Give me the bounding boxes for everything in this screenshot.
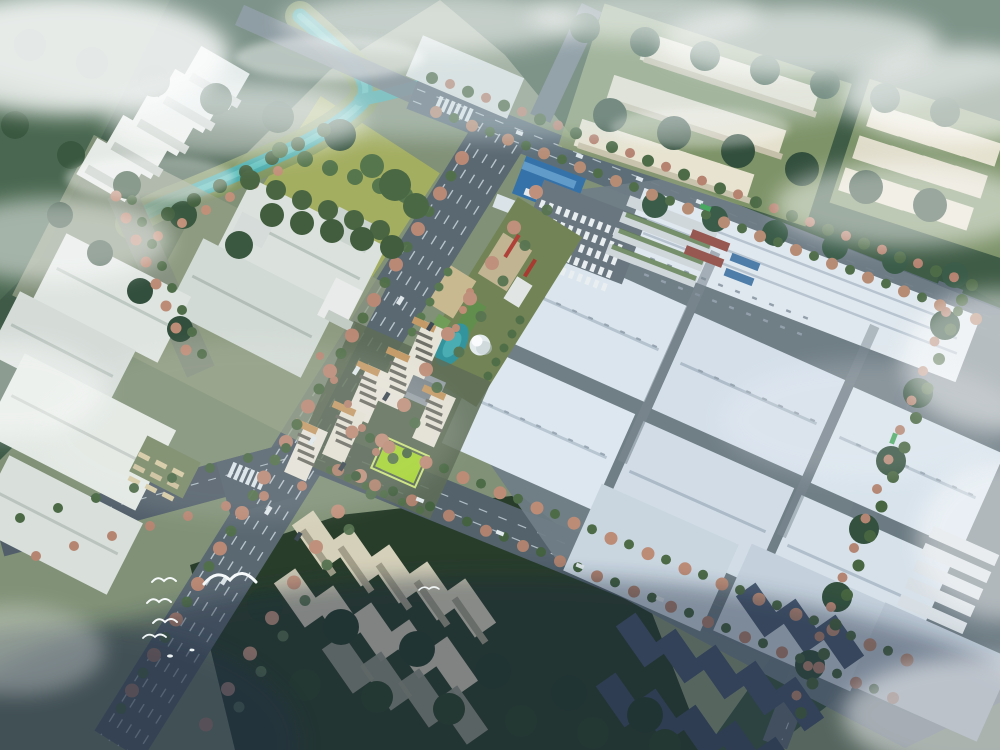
bird-distant xyxy=(190,649,195,652)
cloud xyxy=(105,82,365,158)
haze-mid xyxy=(40,340,460,520)
fog-wisp xyxy=(610,108,790,148)
fog-wisp xyxy=(235,36,425,80)
scene-svg xyxy=(0,0,1000,750)
fog-wisp xyxy=(65,156,235,200)
aerial-rendering xyxy=(0,0,1000,750)
bird-distant xyxy=(167,654,173,657)
